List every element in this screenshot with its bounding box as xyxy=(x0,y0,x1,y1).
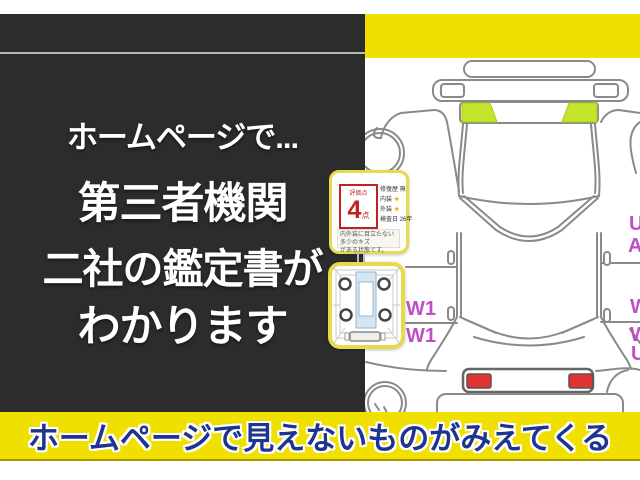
headline-line-4: わかります xyxy=(0,292,365,354)
door-handle xyxy=(604,252,610,265)
top-yellow-bar xyxy=(365,14,640,58)
car-body-outline xyxy=(427,124,631,369)
damage-label-w-right-1: W xyxy=(630,297,640,317)
tail-lamp-left xyxy=(467,374,491,388)
undercarriage-card xyxy=(328,262,405,349)
condition-note: 内外装に目立たない多少のキズ がある状態です。 xyxy=(337,229,400,248)
damage-label-w1-top: W1 xyxy=(406,299,436,319)
headline-line-3: 二社の鑑定書が xyxy=(0,235,365,295)
score-box: 評価点 4 点 xyxy=(339,184,378,229)
damage-label-u-right-2: U xyxy=(631,344,640,364)
car-rear-section xyxy=(433,61,628,123)
spec-row: 内装 ★ xyxy=(380,195,412,205)
spec-row: 検査日 26年 xyxy=(380,215,412,225)
wheel-marker xyxy=(380,310,391,321)
damage-label-u-right: U xyxy=(629,214,640,234)
car-front-section xyxy=(365,362,640,418)
score-value: 4 xyxy=(348,197,362,223)
damage-label-w-right-2: W xyxy=(630,325,640,345)
door-handle xyxy=(604,309,610,322)
door-handle xyxy=(448,251,454,264)
slogan-text: ホームページで見えないものがみえてくる xyxy=(28,413,612,458)
spec-row: 外装 ★ xyxy=(380,205,412,215)
slogan-banner: ホームページで見えないものがみえてくる xyxy=(0,412,640,461)
wheel-marker xyxy=(341,310,352,321)
spec-rows: 修復歴 無 内装 ★ 外装 ★ 検査日 26年 xyxy=(380,185,412,225)
headline-line-2: 第三者機関 xyxy=(0,169,365,231)
damage-label-a-right: A xyxy=(628,236,640,256)
promo-image: ホームページで... 第三者機関 二社の鑑定書が わかります xyxy=(0,0,640,480)
damage-label-w1-bottom: W1 xyxy=(406,326,436,346)
rating-certificate-card: 評価点 4 点 修復歴 無 内装 ★ 外装 ★ 検査日 26年 内外装に目立たな… xyxy=(329,170,409,254)
wheel-marker xyxy=(340,279,351,290)
headline-line-1: ホームページで... xyxy=(0,112,365,157)
panel-divider-line xyxy=(0,52,365,54)
tail-lamp-right xyxy=(569,374,593,388)
spec-row: 修復歴 無 xyxy=(380,185,412,195)
wheel-marker xyxy=(379,279,390,290)
undercarriage-diagram xyxy=(332,266,401,345)
door-handle xyxy=(448,307,454,320)
score-unit: 点 xyxy=(361,210,369,221)
